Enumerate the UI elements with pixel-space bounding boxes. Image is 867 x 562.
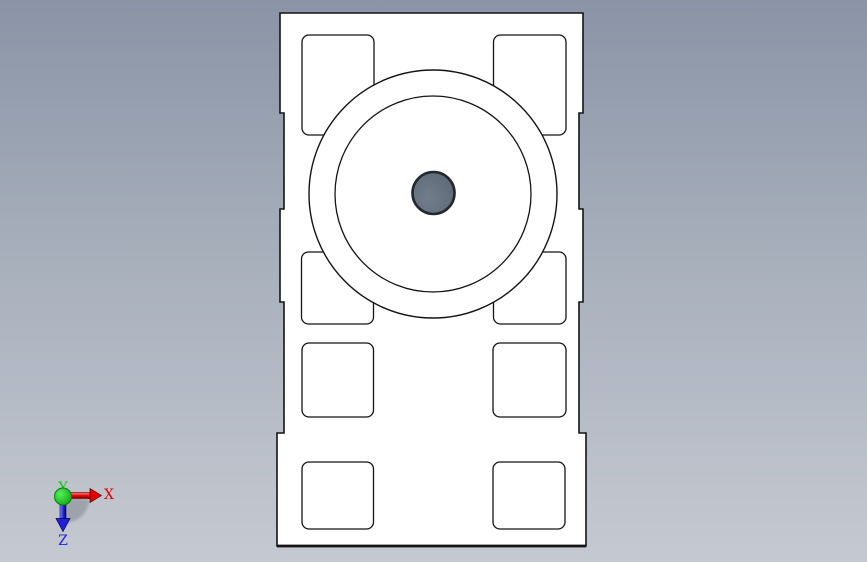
cad-viewport[interactable]: Y X Z: [0, 0, 867, 562]
pocket-row4-right[interactable]: [493, 462, 565, 529]
pocket-row3-left[interactable]: [302, 343, 374, 417]
axis-x-shaft[interactable]: [69, 493, 90, 499]
axis-z-label: Z: [58, 533, 68, 549]
axis-x-label: X: [104, 487, 114, 503]
pocket-row4-left[interactable]: [302, 462, 374, 529]
center-hole[interactable]: [413, 172, 455, 214]
pocket-row3-right[interactable]: [493, 343, 566, 417]
viewport-canvas[interactable]: Y X Z: [0, 0, 867, 562]
part-model[interactable]: [277, 13, 586, 546]
origin-sphere[interactable]: [55, 488, 72, 505]
